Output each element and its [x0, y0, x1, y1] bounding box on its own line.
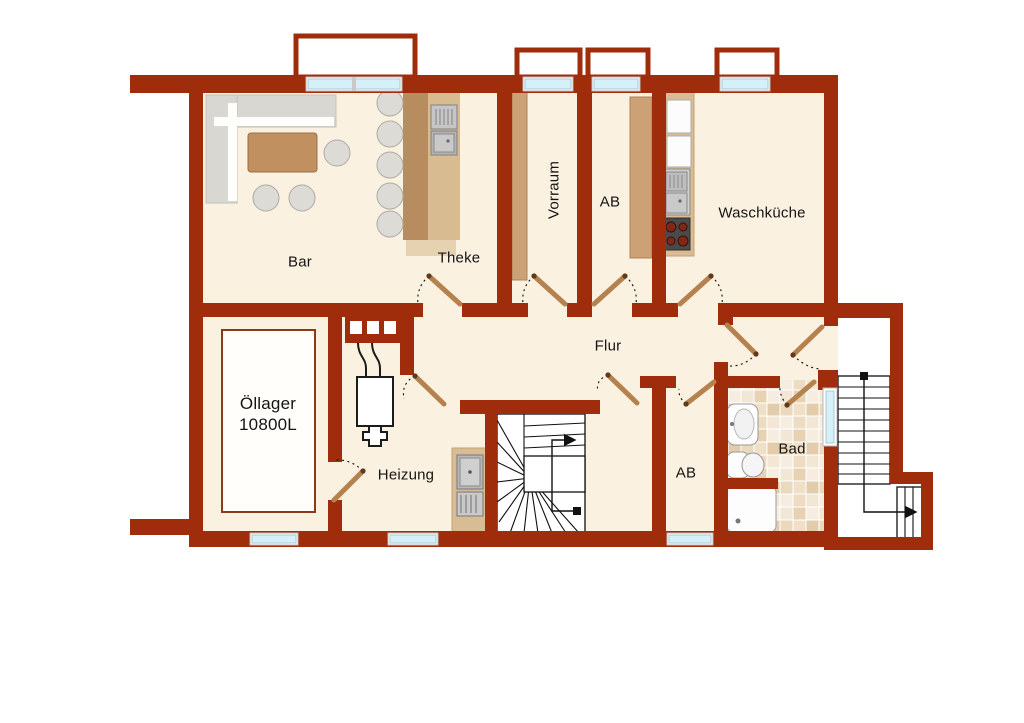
heizung-cabinet: [452, 448, 488, 534]
window-waschkueche: [720, 77, 770, 91]
appliance: [667, 136, 691, 167]
room-label-oellager: Öllager 10800L: [239, 393, 297, 436]
floor-plan-page: Bar Theke Vorraum AB Waschküche Flur Öll…: [0, 0, 1024, 723]
stove: [663, 218, 690, 250]
light-well-vorraum: [517, 50, 580, 77]
waschkueche-unit: [663, 92, 694, 256]
room-label-bar: Bar: [288, 254, 312, 271]
room-label-ab-bottom: AB: [676, 465, 696, 482]
light-well-ab: [588, 50, 648, 77]
window-bad: [823, 388, 837, 446]
window-heizung: [388, 533, 438, 545]
room-label-vorraum: Vorraum: [546, 161, 563, 219]
bar-table: [248, 133, 317, 172]
kitchen-sink: [663, 169, 690, 215]
bar-stools: [377, 90, 403, 237]
room-label-bad: Bad: [778, 441, 805, 458]
ab-shelf: [630, 97, 652, 258]
oellager-name: Öllager: [239, 393, 297, 414]
window-bar: [306, 77, 402, 91]
window-ab: [592, 77, 640, 91]
light-well-bar: [296, 36, 415, 77]
toilet: [727, 452, 764, 478]
stool: [324, 140, 350, 166]
light-well-waschkueche: [717, 50, 777, 77]
window-oellager: [250, 533, 298, 545]
oellager-capacity: 10800L: [239, 414, 297, 435]
light-wells: [296, 36, 777, 77]
winder-stairs: [497, 414, 585, 533]
room-label-heizung: Heizung: [378, 467, 434, 484]
room-label-theke: Theke: [438, 250, 481, 267]
chimney-flues: [350, 321, 396, 334]
window-ab-bottom: [667, 533, 713, 545]
room-label-waschkueche: Waschküche: [718, 205, 805, 222]
stool: [253, 185, 279, 211]
stool: [289, 185, 315, 211]
floor-plan-drawing: [0, 0, 1024, 723]
room-label-flur: Flur: [595, 338, 622, 355]
shower: [727, 486, 776, 532]
vorraum-shelf: [512, 90, 527, 280]
room-label-ab-top: AB: [600, 194, 620, 211]
appliance: [667, 100, 691, 133]
window-vorraum: [523, 77, 573, 91]
bar-counter: [403, 88, 428, 240]
exterior-stairs: [838, 372, 922, 538]
washbasin: [727, 404, 758, 445]
